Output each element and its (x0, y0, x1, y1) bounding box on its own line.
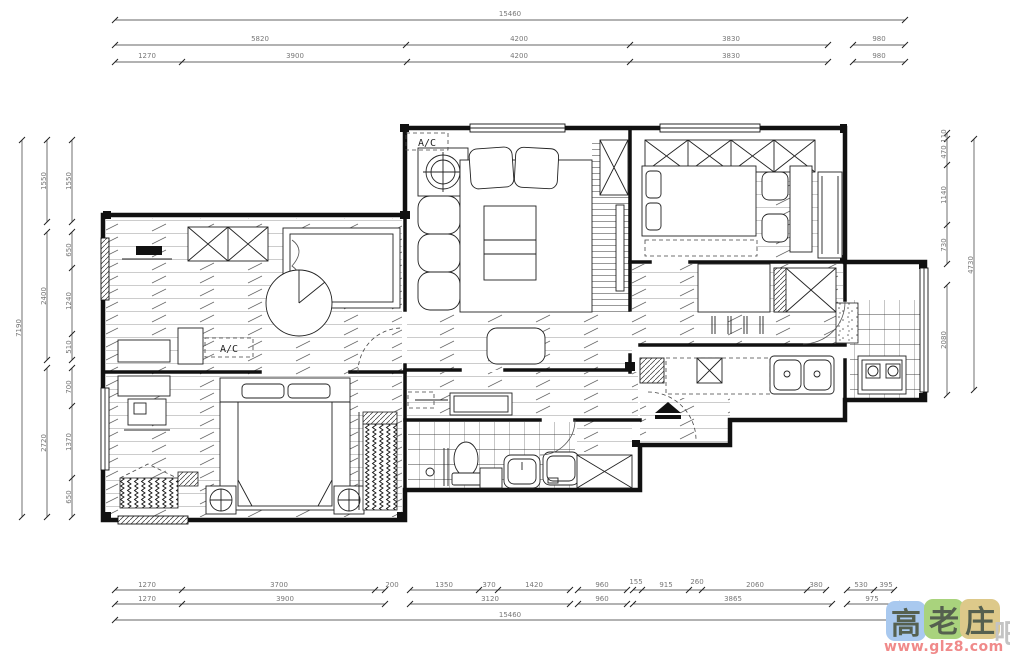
dim-label: 470 (940, 145, 948, 158)
dim-label: 380 (809, 581, 822, 589)
dim-label: 1350 (435, 581, 453, 589)
double-sink-icon (770, 356, 834, 394)
watermark-char: 老 (929, 597, 959, 641)
window-icon (118, 516, 188, 524)
shelf-icon (480, 468, 502, 488)
dim-label: 980 (872, 35, 885, 43)
dresser-icon (124, 399, 170, 430)
dim-label: 2400 (40, 287, 48, 305)
dim-label: 15460 (499, 10, 521, 18)
dim-label: 2060 (746, 581, 764, 589)
dim-label: 915 (659, 581, 672, 589)
dim-label: 975 (865, 595, 878, 603)
bench-icon (487, 328, 545, 364)
watermark-tile-1: 高 (886, 601, 926, 641)
cabinet-icon (178, 328, 203, 364)
dim-label: 1370 (65, 433, 73, 451)
dim-label: 2080 (940, 331, 948, 349)
dim-label: 370 (482, 581, 495, 589)
washbasin-icon (543, 452, 579, 485)
double-bed-icon (220, 378, 350, 510)
dim-label: 960 (595, 595, 608, 603)
double-bed-icon (460, 147, 592, 312)
dim-label: 1270 (138, 52, 156, 60)
dim-label: 3120 (481, 595, 499, 603)
dim-label: 15460 (499, 611, 521, 619)
dim-label: 530 (854, 581, 867, 589)
dim-label: 980 (872, 52, 885, 60)
window-icon (101, 388, 109, 470)
dim-label: 700 (65, 380, 73, 393)
watermark-tile-2: 老 (924, 599, 964, 639)
dim-label: 5820 (251, 35, 269, 43)
floor-plan-page: A/C A/C (0, 0, 1010, 656)
nightstand-icon (334, 486, 364, 514)
lounge-cushions-icon (418, 196, 460, 310)
dim-label: 395 (879, 581, 892, 589)
dim-label: 3830 (722, 35, 740, 43)
right-bedroom (642, 140, 842, 258)
dim-label: 960 (595, 581, 608, 589)
dim-label: 1270 (138, 581, 156, 589)
dim-label: 4200 (510, 35, 528, 43)
watermark-char: 庄 (965, 597, 995, 641)
dim-label: 650 (65, 243, 73, 256)
dim-label: 2720 (40, 434, 48, 452)
tall-cabinet-icon (818, 172, 842, 258)
dim-label: 4730 (967, 256, 975, 274)
dim-label: 155 (629, 578, 642, 586)
dim-label: 1420 (525, 581, 543, 589)
window-icon (470, 124, 565, 132)
washbasin-icon (504, 455, 540, 488)
dim-label: 3700 (270, 581, 288, 589)
dim-label: 1550 (40, 172, 48, 190)
dim-label: 510 (65, 340, 73, 353)
dim-label: 200 (385, 581, 398, 589)
dim-label: 1270 (138, 595, 156, 603)
dim-label: 3830 (722, 52, 740, 60)
bed-icon (642, 166, 757, 256)
watermark-url: www.glz8.com (884, 639, 1004, 655)
shoe-cabinet-icon (450, 393, 512, 415)
window-icon (101, 238, 109, 300)
shower-box-icon (577, 455, 632, 488)
dim-label: 7190 (15, 319, 23, 337)
column-hatch-icon (640, 358, 664, 383)
window-icon (660, 124, 760, 132)
dim-label: 3900 (276, 595, 294, 603)
kitchen (640, 356, 906, 394)
dim-label: 1550 (65, 172, 73, 190)
dim-label: 110 (940, 129, 948, 142)
stove-icon (858, 356, 906, 394)
wardrobe-icon (188, 227, 268, 261)
dim-label: 3865 (724, 595, 742, 603)
dim-label: 3900 (286, 52, 304, 60)
cabinet-x-icon (774, 268, 836, 312)
dim-label: 650 (65, 490, 73, 503)
ac-text: A/C (418, 138, 436, 149)
wardrobe-hanging-icon (359, 412, 397, 510)
dim-label: 1140 (940, 186, 948, 204)
dim-label: 1240 (65, 292, 73, 310)
dim-label: 4200 (510, 52, 528, 60)
nightstand-icon (206, 486, 236, 514)
counter-icon (666, 358, 770, 394)
watermark-char: 高 (891, 599, 921, 643)
floor-plan-drawing: A/C A/C (0, 0, 1010, 656)
dining-table-icon (698, 264, 770, 312)
ac-text: A/C (220, 344, 238, 355)
dim-label: 730 (940, 238, 948, 251)
ac-unit-label: A/C (406, 133, 448, 150)
round-rug-icon (266, 270, 332, 336)
window-icon (920, 268, 928, 392)
dim-label: 260 (690, 578, 703, 586)
